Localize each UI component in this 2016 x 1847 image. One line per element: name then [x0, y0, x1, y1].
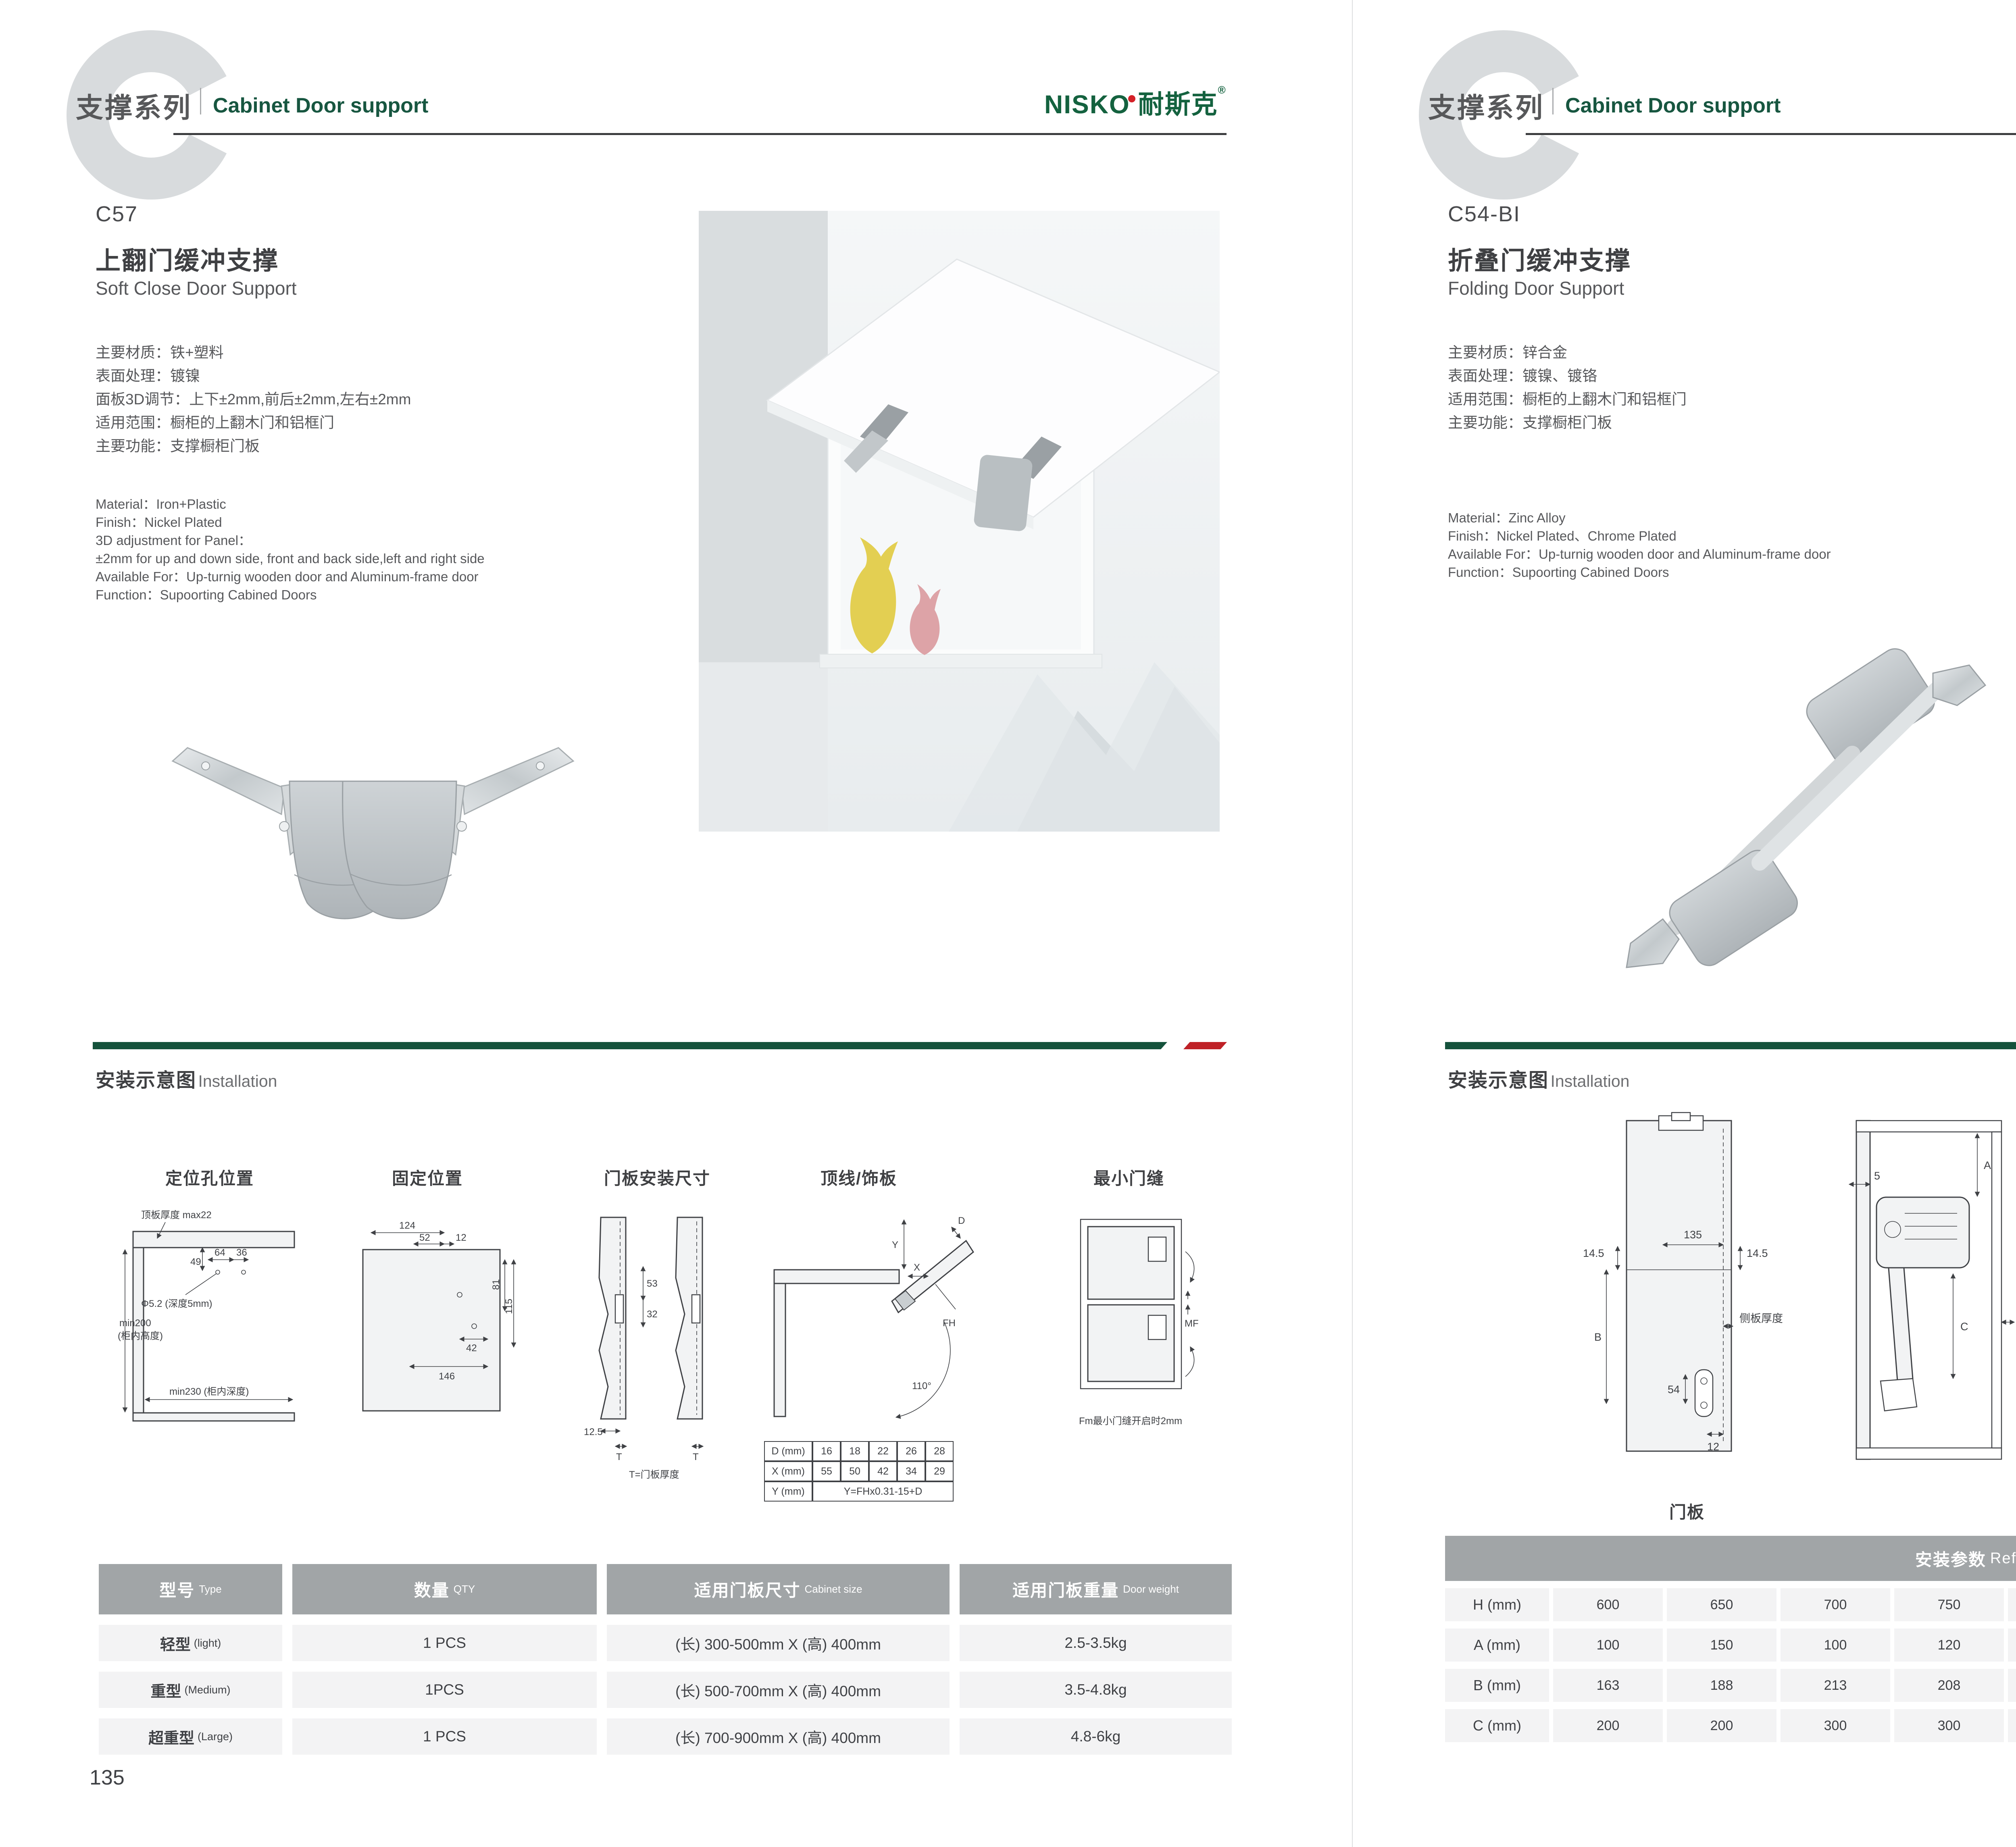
- spec-line: 3D adjustment for Panel：: [96, 531, 485, 549]
- spec-line: Material：Iron+Plastic: [96, 495, 485, 513]
- table-row: 重型(Medium): [99, 1672, 282, 1708]
- table-row: 轻型(light): [99, 1625, 282, 1661]
- spec-line: Function：Supoorting Cabined Doors: [96, 586, 485, 604]
- install-heading: 安装示意图 Installation: [96, 1064, 277, 1092]
- series-title-cn: 支撑系列: [1428, 85, 1544, 125]
- table-cell: 2.5-3.5kg: [960, 1625, 1232, 1661]
- diagram-crown-panel: Y X D FH 110°: [762, 1193, 980, 1435]
- spec-line: 主要功能：支撑橱柜门板: [1448, 411, 1687, 435]
- row-label: C (mm): [1445, 1709, 1549, 1742]
- spec-line: Available For：Up-turnig wooden door and …: [1448, 545, 1831, 563]
- diagram-label: 门板: [1635, 1499, 1739, 1523]
- logo-cn: 耐斯克: [1138, 90, 1218, 119]
- svg-text:(柜内高度): (柜内高度): [118, 1331, 163, 1342]
- header-separator: [1552, 88, 1554, 114]
- svg-text:12: 12: [456, 1232, 467, 1243]
- diagram-label: 定位孔位置: [125, 1165, 294, 1190]
- svg-text:Fm最小门缝开启时2mm: Fm最小门缝开启时2mm: [1079, 1416, 1182, 1427]
- spec-line: 主要材质：锌合金: [1448, 341, 1687, 364]
- svg-text:146: 146: [439, 1371, 455, 1382]
- header-separator: [200, 88, 201, 114]
- row-label: A (mm): [1445, 1629, 1549, 1662]
- diagram-label: 固定位置: [355, 1165, 500, 1190]
- section-bar-green: [1445, 1042, 2016, 1049]
- section-bar-green: [93, 1042, 1167, 1049]
- model-code: C54-BI: [1448, 202, 1520, 227]
- product-photo-hardware: [1570, 621, 2016, 992]
- install-heading-en: Installation: [198, 1072, 277, 1090]
- page-number: 135: [90, 1766, 125, 1790]
- product-title-en: Folding Door Support: [1448, 277, 1624, 299]
- spec-line: Finish：Nickel Plated: [96, 513, 485, 531]
- row-label: H (mm): [1445, 1588, 1549, 1621]
- table-cell: 3.5-4.8kg: [960, 1672, 1232, 1708]
- spec-line: Available For：Up-turnig wooden door and …: [96, 568, 485, 586]
- diagram-label: 最小门缝: [1056, 1165, 1202, 1190]
- table-cell: 1PCS: [292, 1672, 597, 1708]
- install-heading: 安装示意图 Installation: [1448, 1064, 1629, 1092]
- spec-line: 面板3D调节：上下±2mm,前后±2mm,左右±2mm: [96, 388, 411, 411]
- specs-cn: 主要材质：锌合金 表面处理：镀镍、镀铬 适用范围：橱柜的上翻木门和铝框门 主要功…: [1448, 341, 1687, 435]
- svg-text:min230 (柜内深度): min230 (柜内深度): [169, 1386, 249, 1397]
- svg-text:14.5: 14.5: [1747, 1247, 1768, 1259]
- svg-text:T: T: [693, 1452, 699, 1462]
- spec-line: Function：Supoorting Cabined Doors: [1448, 563, 1831, 581]
- svg-text:C: C: [1960, 1321, 1968, 1333]
- svg-text:124: 124: [399, 1220, 415, 1231]
- svg-text:侧板厚度: 侧板厚度: [1739, 1312, 1783, 1325]
- svg-text:12: 12: [1707, 1441, 1719, 1453]
- svg-text:B: B: [1594, 1331, 1602, 1343]
- spec-line: Finish：Nickel Plated、Chrome Plated: [1448, 527, 1831, 545]
- product-photo-cabinet: [699, 211, 1220, 832]
- table-header: 数量QTY: [292, 1564, 597, 1614]
- install-heading-en: Installation: [1550, 1072, 1629, 1090]
- svg-text:49: 49: [190, 1256, 201, 1267]
- logo-dot-icon: [1128, 95, 1135, 102]
- svg-text:Φ5.2 (深度5mm): Φ5.2 (深度5mm): [141, 1298, 212, 1309]
- table-header: 适用门板尺寸Cabinet size: [607, 1564, 950, 1614]
- svg-text:T=门板厚度: T=门板厚度: [629, 1469, 679, 1480]
- table-cell: (长) 500-700mm X (高) 400mm: [607, 1672, 950, 1708]
- model-code: C57: [96, 202, 138, 227]
- header-rule: [173, 133, 1227, 135]
- series-title-cn: 支撑系列: [76, 85, 192, 125]
- svg-text:A: A: [1984, 1159, 1991, 1171]
- svg-text:81: 81: [491, 1279, 502, 1290]
- svg-text:64: 64: [215, 1247, 225, 1258]
- spec-line: 主要功能：支撑橱柜门板: [96, 435, 411, 458]
- spec-line: 表面处理：镀镍: [96, 364, 411, 388]
- header-rule: [1526, 133, 2016, 135]
- section-bar-red: [1183, 1042, 1227, 1049]
- diagram-fixing-position: 124 52 12 81 115 42 146: [339, 1193, 516, 1451]
- table-cell: 4.8-6kg: [960, 1718, 1232, 1755]
- svg-text:115: 115: [504, 1299, 514, 1314]
- svg-text:MF: MF: [1185, 1318, 1199, 1329]
- table-cell: (长) 700-900mm X (高) 400mm: [607, 1718, 950, 1755]
- series-title-en: Cabinet Door support: [213, 94, 428, 118]
- svg-text:min200: min200: [119, 1318, 151, 1329]
- spec-line: 主要材质：铁+塑料: [96, 341, 411, 364]
- svg-text:53: 53: [647, 1278, 658, 1289]
- svg-text:X: X: [914, 1262, 920, 1273]
- svg-text:D: D: [958, 1215, 965, 1226]
- svg-text:5: 5: [1874, 1170, 1880, 1182]
- product-title-cn: 折叠门缓冲支撑: [1448, 240, 1631, 277]
- table-cell: 1 PCS: [292, 1625, 597, 1661]
- svg-text:T: T: [616, 1452, 622, 1462]
- svg-text:14.5: 14.5: [1583, 1247, 1604, 1259]
- table-header: 适用门板重量Door weight: [960, 1564, 1232, 1614]
- spec-line: 表面处理：镀镍、镀铬: [1448, 364, 1687, 388]
- table-header: 型号Type: [99, 1564, 282, 1614]
- table-cell: (长) 300-500mm X (高) 400mm: [607, 1625, 950, 1661]
- specs-en: Material：Iron+Plastic Finish：Nickel Plat…: [96, 495, 485, 604]
- svg-text:110°: 110°: [912, 1381, 931, 1391]
- svg-text:12.5: 12.5: [584, 1427, 603, 1437]
- logo-latin: NISKO: [1044, 90, 1130, 119]
- svg-text:135: 135: [1684, 1229, 1702, 1241]
- brand-logo: NISKO 耐斯克®: [1044, 84, 1227, 121]
- svg-text:54: 54: [1668, 1383, 1680, 1396]
- product-title-en: Soft Close Door Support: [96, 277, 297, 299]
- diagram-door-mounting: 53 32 12.5 T T T=门板厚度: [577, 1193, 738, 1483]
- table-row: 超重型(Large): [99, 1718, 282, 1755]
- product-photo-hardware: [121, 734, 625, 935]
- svg-text:42: 42: [466, 1343, 477, 1354]
- spec-line: ±2mm for up and down side, front and bac…: [96, 549, 485, 568]
- diagram-label: 顶线/饰板: [786, 1165, 931, 1190]
- row-label: B (mm): [1445, 1669, 1549, 1702]
- left-page: 支撑系列 Cabinet Door support NISKO 耐斯克® C57…: [0, 0, 1352, 1847]
- spec-line: Material：Zinc Alloy: [1448, 509, 1831, 527]
- diagram-cabinet-side: 5 A C 19: [1832, 1096, 2016, 1491]
- svg-text:顶板厚度 max22: 顶板厚度 max22: [141, 1210, 212, 1221]
- svg-text:32: 32: [647, 1309, 658, 1320]
- diagram-label: 门板安装尺寸: [573, 1165, 742, 1190]
- svg-text:52: 52: [419, 1232, 430, 1243]
- table-title: 安装参数Reference Data: [1445, 1536, 2016, 1581]
- spec-line: 适用范围：橱柜的上翻木门和铝框门: [1448, 388, 1687, 411]
- diagram-min-gap: MF Fm最小门缝开启时2mm: [1064, 1203, 1202, 1437]
- diagram-door-panel: 135 14.5 14.5 B 侧板厚度 54 12: [1566, 1096, 1808, 1491]
- specs-cn: 主要材质：铁+塑料 表面处理：镀镍 面板3D调节：上下±2mm,前后±2mm,左…: [96, 341, 411, 458]
- svg-text:Y: Y: [892, 1240, 898, 1250]
- install-heading-cn: 安装示意图: [1448, 1070, 1549, 1091]
- product-title-cn: 上翻门缓冲支撑: [96, 240, 279, 277]
- table-cell: 1 PCS: [292, 1718, 597, 1755]
- logo-reg: ®: [1218, 84, 1226, 96]
- install-heading-cn: 安装示意图: [96, 1070, 196, 1091]
- svg-text:36: 36: [236, 1247, 247, 1258]
- series-title-en: Cabinet Door support: [1565, 94, 1781, 118]
- diagram-positioning-holes: 顶板厚度 max22 49 64 36 Φ5.2 (深度5mm) min200 …: [117, 1193, 302, 1451]
- spec-line: 适用范围：橱柜的上翻木门和铝框门: [96, 411, 411, 435]
- right-page: 支撑系列 Cabinet Door support NISKO 耐斯克® C54…: [1352, 0, 2016, 1847]
- specs-en: Material：Zinc Alloy Finish：Nickel Plated…: [1448, 509, 1831, 581]
